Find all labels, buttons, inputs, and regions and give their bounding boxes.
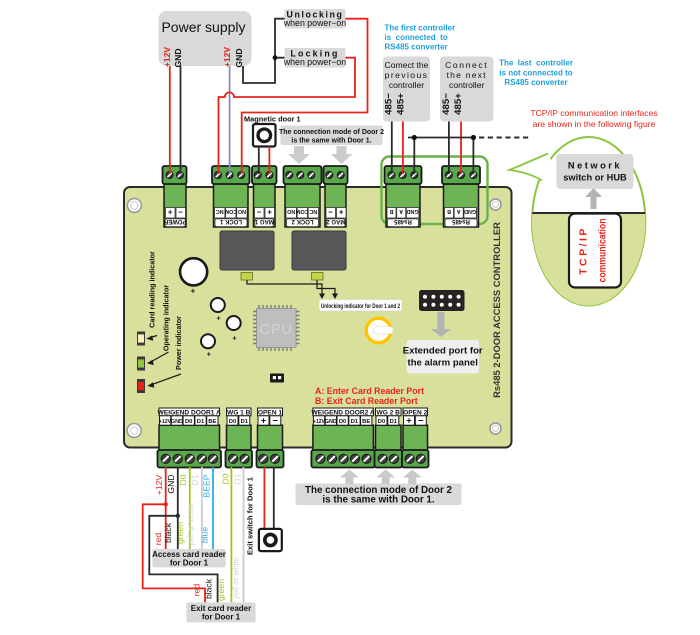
svg-text:+: + xyxy=(339,207,344,216)
svg-text:Power supply: Power supply xyxy=(161,19,245,35)
svg-text:BE: BE xyxy=(362,419,370,425)
svg-text:red: red xyxy=(192,584,202,597)
svg-text:−: − xyxy=(418,416,423,426)
svg-text:communication: communication xyxy=(597,219,609,283)
svg-text:D0: D0 xyxy=(378,419,385,425)
svg-text:485+: 485+ xyxy=(453,93,464,115)
svg-text:B: Exit Card Reader Port: B: Exit Card Reader Port xyxy=(315,396,418,406)
svg-text:is not connected to: is not connected to xyxy=(499,69,572,78)
svg-text:controller: controller xyxy=(389,80,424,90)
svg-text:NC: NC xyxy=(309,208,317,214)
svg-text:A: Enter Card Reader Port: A: Enter Card Reader Port xyxy=(315,386,424,396)
svg-text:green: green xyxy=(175,522,185,544)
svg-text:are shown in the following fig: are shown in the following figure xyxy=(533,119,656,129)
svg-text:D1: D1 xyxy=(241,419,249,425)
svg-text:485−: 485− xyxy=(384,93,395,115)
svg-text:COM: COM xyxy=(296,208,309,214)
svg-text:previous: previous xyxy=(385,70,429,80)
svg-text:WEIGEND DOOR1 A: WEIGEND DOOR1 A xyxy=(158,409,221,416)
svg-text:+: + xyxy=(168,207,173,216)
svg-text:COM: COM xyxy=(224,208,237,214)
svg-text:GND: GND xyxy=(325,419,337,425)
svg-text:when power−on: when power−on xyxy=(283,18,346,28)
svg-text:+: + xyxy=(217,316,221,323)
svg-text:LOCK 2: LOCK 2 xyxy=(291,218,314,224)
svg-text:The last controller: The last controller xyxy=(499,59,573,68)
svg-text:Magnetic door 1: Magnetic door 1 xyxy=(244,115,301,124)
svg-text:GND: GND xyxy=(171,419,183,425)
svg-text:Connect: Connect xyxy=(445,60,488,70)
svg-text:−: − xyxy=(328,207,333,216)
svg-text:LOCK 1: LOCK 1 xyxy=(219,218,242,224)
svg-text:yell or white: yell or white xyxy=(187,503,196,546)
svg-text:B: B xyxy=(447,208,451,214)
svg-text:Operating indicator: Operating indicator xyxy=(162,285,171,351)
svg-text:POWER: POWER xyxy=(163,218,186,224)
svg-text:+: + xyxy=(207,352,211,359)
svg-text:485−: 485− xyxy=(441,93,452,115)
svg-text:A: A xyxy=(399,208,403,214)
svg-text:GND: GND xyxy=(464,208,476,214)
svg-text:+: + xyxy=(232,336,236,343)
svg-text:for Door 1: for Door 1 xyxy=(170,558,209,567)
svg-text:GND: GND xyxy=(166,474,176,493)
svg-text:A: A xyxy=(457,208,461,214)
svg-text:the next: the next xyxy=(447,70,487,80)
svg-text:Network: Network xyxy=(568,161,622,171)
svg-text:Card reading indicator: Card reading indicator xyxy=(148,251,157,328)
svg-text:Extended port for: Extended port for xyxy=(403,346,483,357)
svg-text:D1: D1 xyxy=(197,419,205,425)
svg-text:yell or white: yell or white xyxy=(232,556,241,599)
svg-text:+12V: +12V xyxy=(313,419,325,425)
svg-text:−: − xyxy=(178,207,183,216)
svg-text:Rs485: Rs485 xyxy=(394,218,412,224)
svg-text:D0: D0 xyxy=(221,473,231,484)
svg-text:black: black xyxy=(163,522,173,543)
svg-text:GND: GND xyxy=(234,48,244,67)
svg-text:MAG 2: MAG 2 xyxy=(326,218,346,224)
svg-text:D1: D1 xyxy=(190,474,200,485)
svg-text:B: B xyxy=(389,208,393,214)
svg-text:D0: D0 xyxy=(229,419,236,425)
svg-text:green: green xyxy=(216,579,226,601)
svg-text:TCP/IP: TCP/IP xyxy=(578,226,590,275)
svg-text:−: − xyxy=(257,207,262,216)
svg-text:when power−on: when power−on xyxy=(283,57,346,67)
svg-text:Rs485 2-DOOR ACCESS CONTROLLER: Rs485 2-DOOR ACCESS CONTROLLER xyxy=(491,222,502,398)
svg-text:is connected to: is connected to xyxy=(385,33,448,42)
svg-text:RS485 converter: RS485 converter xyxy=(385,43,448,52)
svg-text:black: black xyxy=(204,578,214,599)
svg-text:D0: D0 xyxy=(178,474,188,485)
svg-text:for Door 1: for Door 1 xyxy=(202,613,241,622)
svg-text:TCP/IP communication interface: TCP/IP communication interfaces xyxy=(530,108,657,118)
svg-text:−: − xyxy=(273,416,278,426)
svg-text:+12V: +12V xyxy=(159,419,171,425)
svg-text:WG 1 B: WG 1 B xyxy=(227,409,251,416)
svg-text:WEIGEND DOOR2 A: WEIGEND DOOR2 A xyxy=(312,409,375,416)
svg-text:switch or HUB: switch or HUB xyxy=(563,173,627,183)
svg-text:+: + xyxy=(406,416,411,426)
svg-text:NC: NC xyxy=(216,208,224,214)
svg-text:+12V: +12V xyxy=(162,47,172,68)
svg-text:Comect the: Comect the xyxy=(385,60,429,70)
svg-text:+: + xyxy=(191,287,196,296)
svg-text:+: + xyxy=(267,207,272,216)
svg-text:NO: NO xyxy=(238,208,246,214)
svg-text:BEEP: BEEP xyxy=(201,474,211,497)
svg-text:+12V: +12V xyxy=(154,475,164,496)
svg-text:+: + xyxy=(261,416,266,426)
svg-text:controller: controller xyxy=(449,80,484,90)
svg-text:The connection mode of Door 2: The connection mode of Door 2 xyxy=(279,129,384,136)
svg-text:Rs485: Rs485 xyxy=(452,218,470,224)
svg-text:WG 2 B: WG 2 B xyxy=(376,409,400,416)
svg-text:D1: D1 xyxy=(233,473,243,484)
svg-text:NO: NO xyxy=(287,208,295,214)
svg-text:BE: BE xyxy=(208,419,216,425)
svg-text:485+: 485+ xyxy=(396,93,407,115)
svg-text:D1: D1 xyxy=(351,419,359,425)
svg-text:+12V: +12V xyxy=(222,47,232,68)
svg-text:GND: GND xyxy=(407,208,419,214)
svg-text:Power indicator: Power indicator xyxy=(174,316,183,370)
svg-text:red: red xyxy=(153,533,163,546)
svg-text:D0: D0 xyxy=(185,419,192,425)
svg-text:RS485 converter: RS485 converter xyxy=(504,78,567,87)
svg-text:blue: blue xyxy=(199,527,209,543)
svg-text:The first controller: The first controller xyxy=(385,24,456,33)
svg-text:Unlocking indicator for Door 1: Unlocking indicator for Door 1 and 2 xyxy=(321,303,400,310)
svg-text:GND: GND xyxy=(173,48,183,67)
svg-text:CPU: CPU xyxy=(259,322,293,338)
svg-text:MAG 1: MAG 1 xyxy=(254,218,274,224)
svg-text:is the same with Door 1.: is the same with Door 1. xyxy=(291,137,371,144)
svg-text:D0: D0 xyxy=(339,419,346,425)
svg-text:is the same with Door 1.: is the same with Door 1. xyxy=(322,495,434,506)
svg-text:D1: D1 xyxy=(390,419,398,425)
svg-text:the alarm panel: the alarm panel xyxy=(408,358,478,369)
svg-text:Exit card reader: Exit card reader xyxy=(191,604,251,613)
svg-text:Exit switch for Door 1: Exit switch for Door 1 xyxy=(246,476,255,555)
